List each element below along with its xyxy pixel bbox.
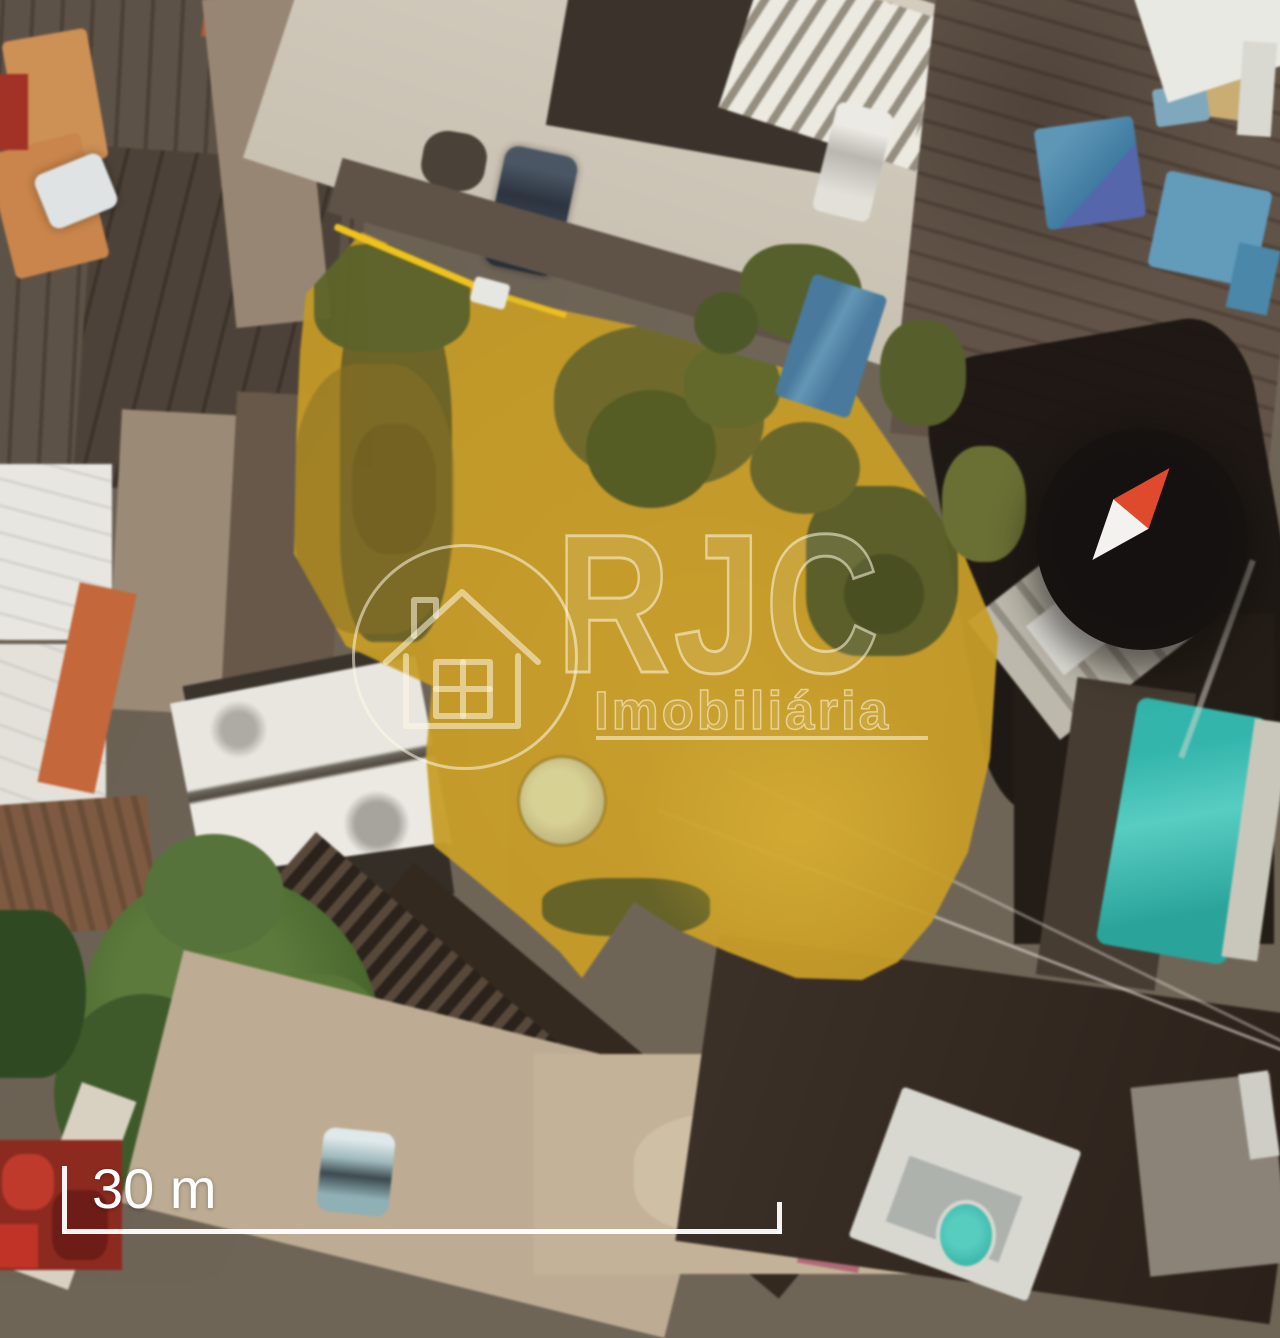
scale-bar-left-tick bbox=[62, 1166, 67, 1234]
scale-bar-right-tick bbox=[777, 1202, 782, 1234]
red-roof-cluster bbox=[0, 1224, 38, 1268]
bush bbox=[942, 446, 1026, 562]
bush bbox=[694, 292, 758, 354]
red-roof-cluster bbox=[2, 1154, 54, 1210]
watermark-underline bbox=[596, 736, 928, 740]
scale-bar-label: 30 m bbox=[92, 1156, 217, 1221]
parked-car bbox=[316, 1126, 396, 1217]
watermark-brand: RJC bbox=[556, 505, 882, 703]
house-icon bbox=[352, 544, 572, 764]
bush bbox=[880, 320, 966, 426]
scale-bar-line bbox=[62, 1229, 782, 1234]
teal-tank bbox=[936, 1200, 996, 1270]
roof-patch-red bbox=[0, 74, 28, 150]
water-tank bbox=[520, 758, 604, 844]
north-arrow-icon bbox=[1028, 404, 1248, 624]
white-building-edge bbox=[1237, 41, 1277, 137]
tree-canopy bbox=[144, 834, 284, 954]
watermark-subtitle: Imobiliária bbox=[594, 684, 891, 738]
blue-tarp bbox=[1033, 116, 1146, 231]
